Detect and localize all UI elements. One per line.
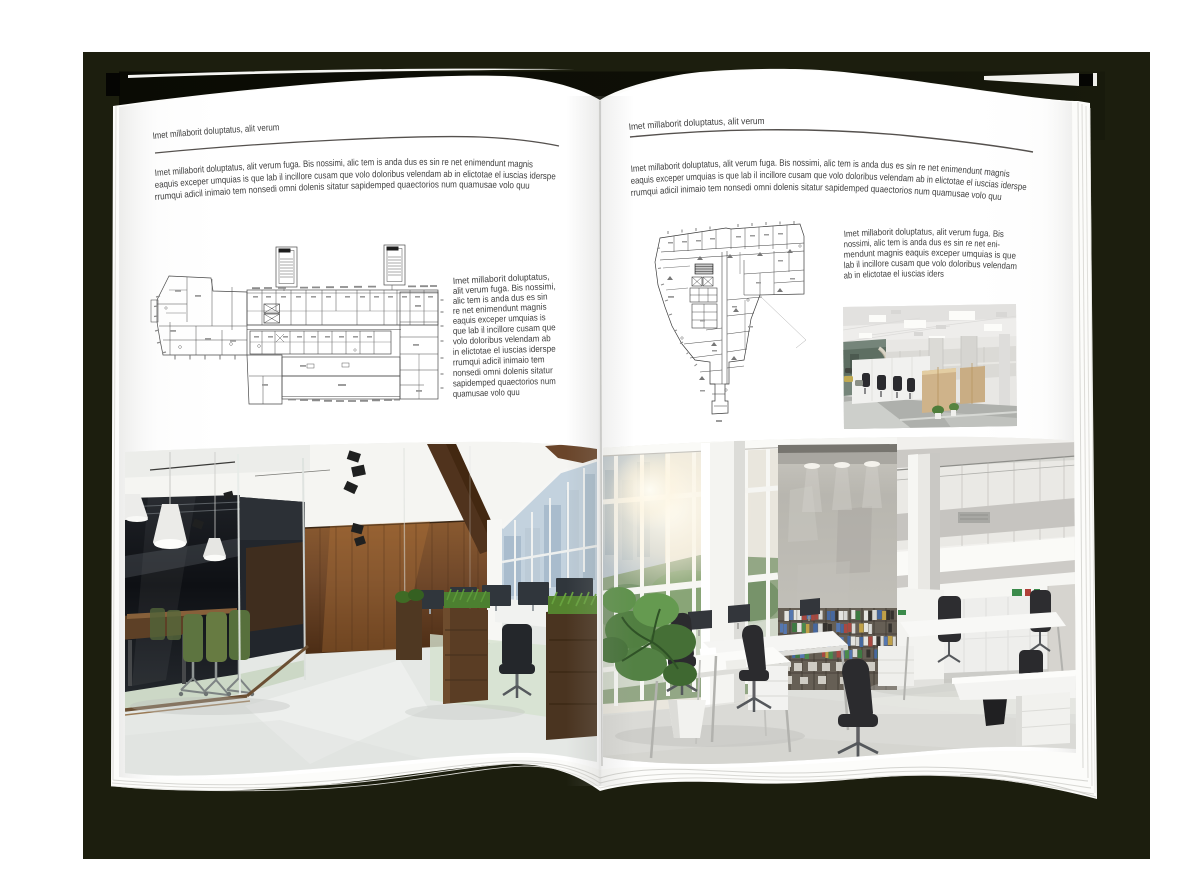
svg-text:quamusae volo quu: quamusae volo quu <box>453 387 520 399</box>
